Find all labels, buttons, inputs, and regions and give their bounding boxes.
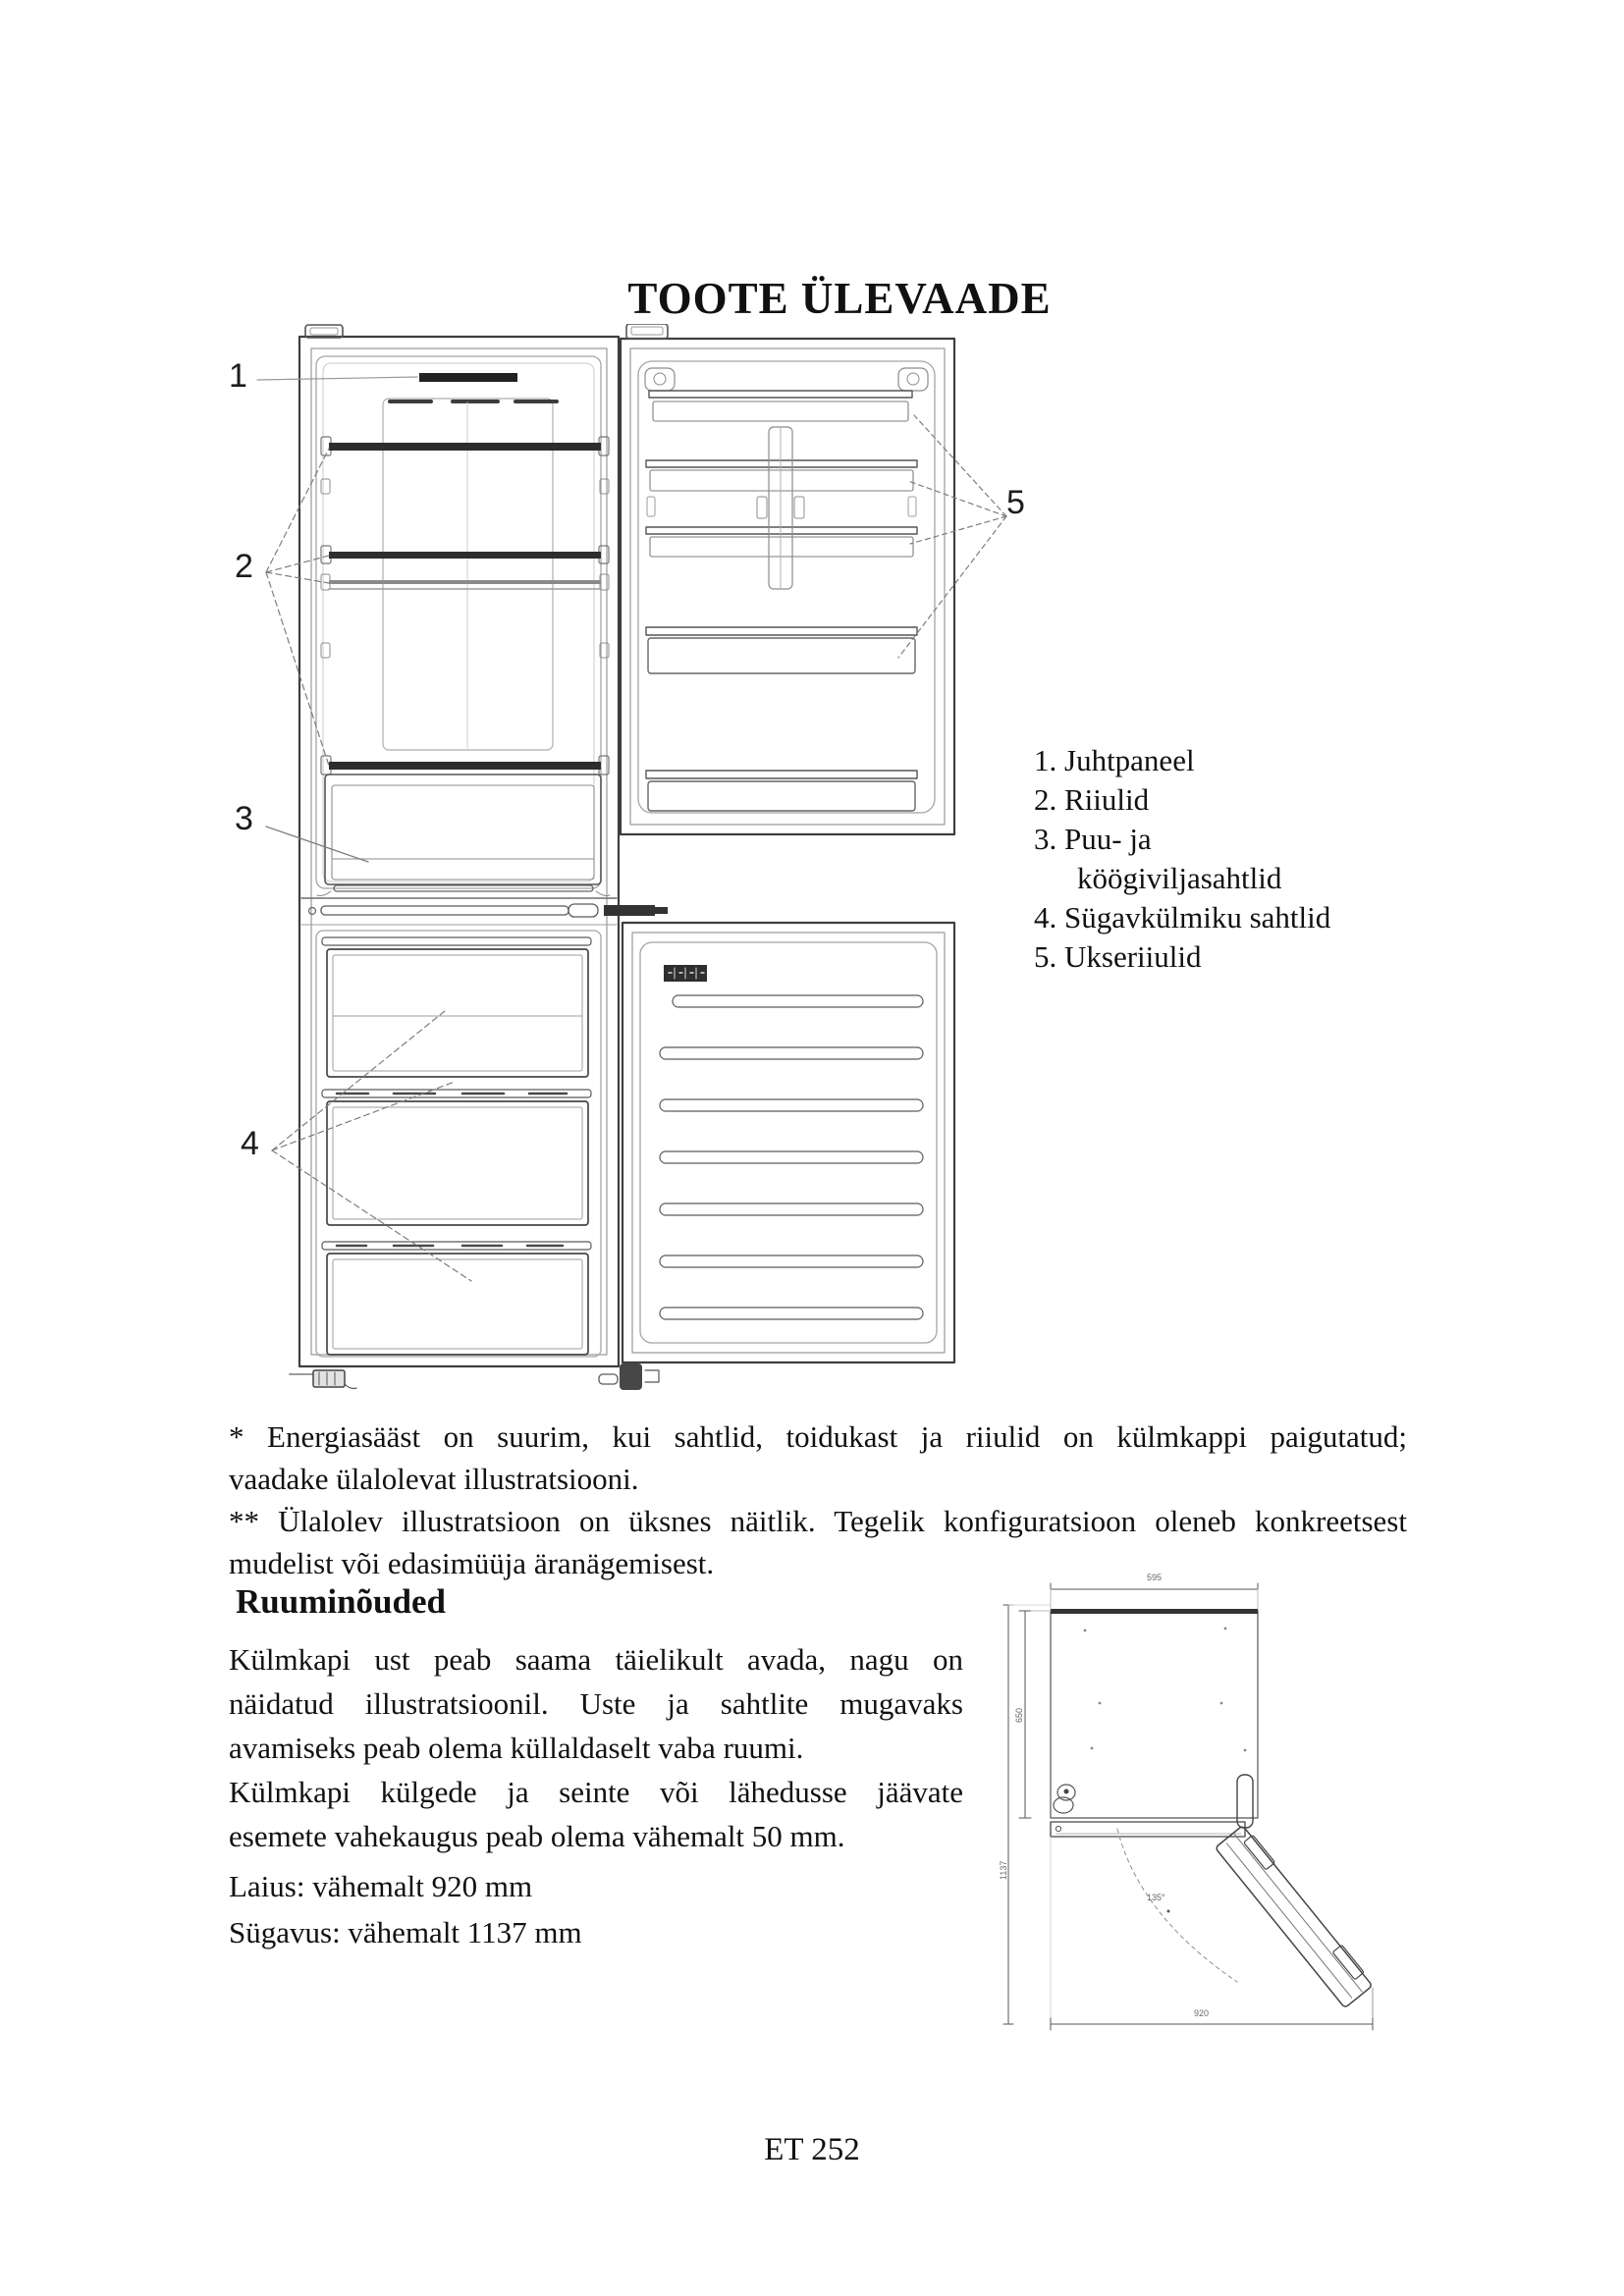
space-requirements-text: Külmkapi ust peab saama täielikult avada…: [229, 1637, 963, 1858]
top-view-diagram: [1001, 1566, 1424, 2056]
legend-item-3-line2: köögiviljasahtlid: [1034, 859, 1330, 898]
callout-4-freezer-drawers: 4: [241, 1127, 259, 1160]
legend-item-1: 1. Juhtpaneel: [1034, 741, 1330, 780]
dim-total-width-label: 920: [1194, 2009, 1209, 2018]
page-title: TOOTE ÜLEVAADE: [27, 273, 1624, 324]
dim-cabinet-depth-label: 650: [1015, 1708, 1024, 1723]
callout-1-control-panel: 1: [229, 359, 247, 393]
body-line: Külmkapi külgede ja seinte või lähedusse…: [229, 1770, 963, 1814]
legend-item-2: 2. Riiulid: [1034, 780, 1330, 820]
legend-item-4: 4. Sügavkülmiku sahtlid: [1034, 898, 1330, 937]
parts-legend: 1. Juhtpaneel 2. Riiulid 3. Puu- ja köög…: [1034, 741, 1330, 977]
dim-cabinet-width-label: 595: [1147, 1574, 1162, 1582]
callout-3-crisper: 3: [235, 802, 253, 835]
dim-door-angle-label: 135°: [1147, 1894, 1165, 1902]
depth-requirement: Sügavus: vähemalt 1137 mm: [229, 1909, 582, 1955]
body-line: esemete vahekaugus peab olema vähemalt 5…: [229, 1814, 963, 1858]
page-number: ET 252: [0, 2132, 1624, 2168]
section-heading: Ruuminõuded: [236, 1582, 446, 1622]
body-line: avamiseks peab olema küllaldaselt vaba r…: [229, 1726, 963, 1770]
body-line: näidatud illustratsioonil. Uste ja sahtl…: [229, 1682, 963, 1726]
minimum-dimensions: Laius: vähemalt 920 mm Sügavus: vähemalt…: [229, 1863, 582, 1955]
callout-2-shelves: 2: [235, 550, 253, 583]
legend-item-5: 5. Ukseriiulid: [1034, 937, 1330, 977]
footnote-energy-line2: vaadake ülalolevat illustratsiooni.: [229, 1458, 1407, 1500]
width-requirement: Laius: vähemalt 920 mm: [229, 1863, 582, 1909]
footnote-energy-line1: * Energiasääst on suurim, kui sahtlid, t…: [229, 1415, 1407, 1458]
product-overview-diagram: 1 2 3 4 5: [221, 324, 1056, 1404]
dim-total-depth-label: 1137: [1000, 1861, 1008, 1880]
footnotes: * Energiasääst on suurim, kui sahtlid, t…: [229, 1415, 1407, 1584]
footnote-illustration-line1: ** Ülalolev illustratsioon on üksnes näi…: [229, 1500, 1407, 1542]
body-line: Külmkapi ust peab saama täielikult avada…: [229, 1637, 963, 1682]
manual-page: TOOTE ÜLEVAADE: [0, 0, 1624, 2296]
callout-5-door-racks: 5: [1006, 486, 1025, 519]
space-requirements-diagram: 595 650 1137 920 135°: [1001, 1566, 1424, 2056]
legend-item-3: 3. Puu- ja: [1034, 820, 1330, 859]
fridge-diagram: [221, 324, 1056, 1404]
